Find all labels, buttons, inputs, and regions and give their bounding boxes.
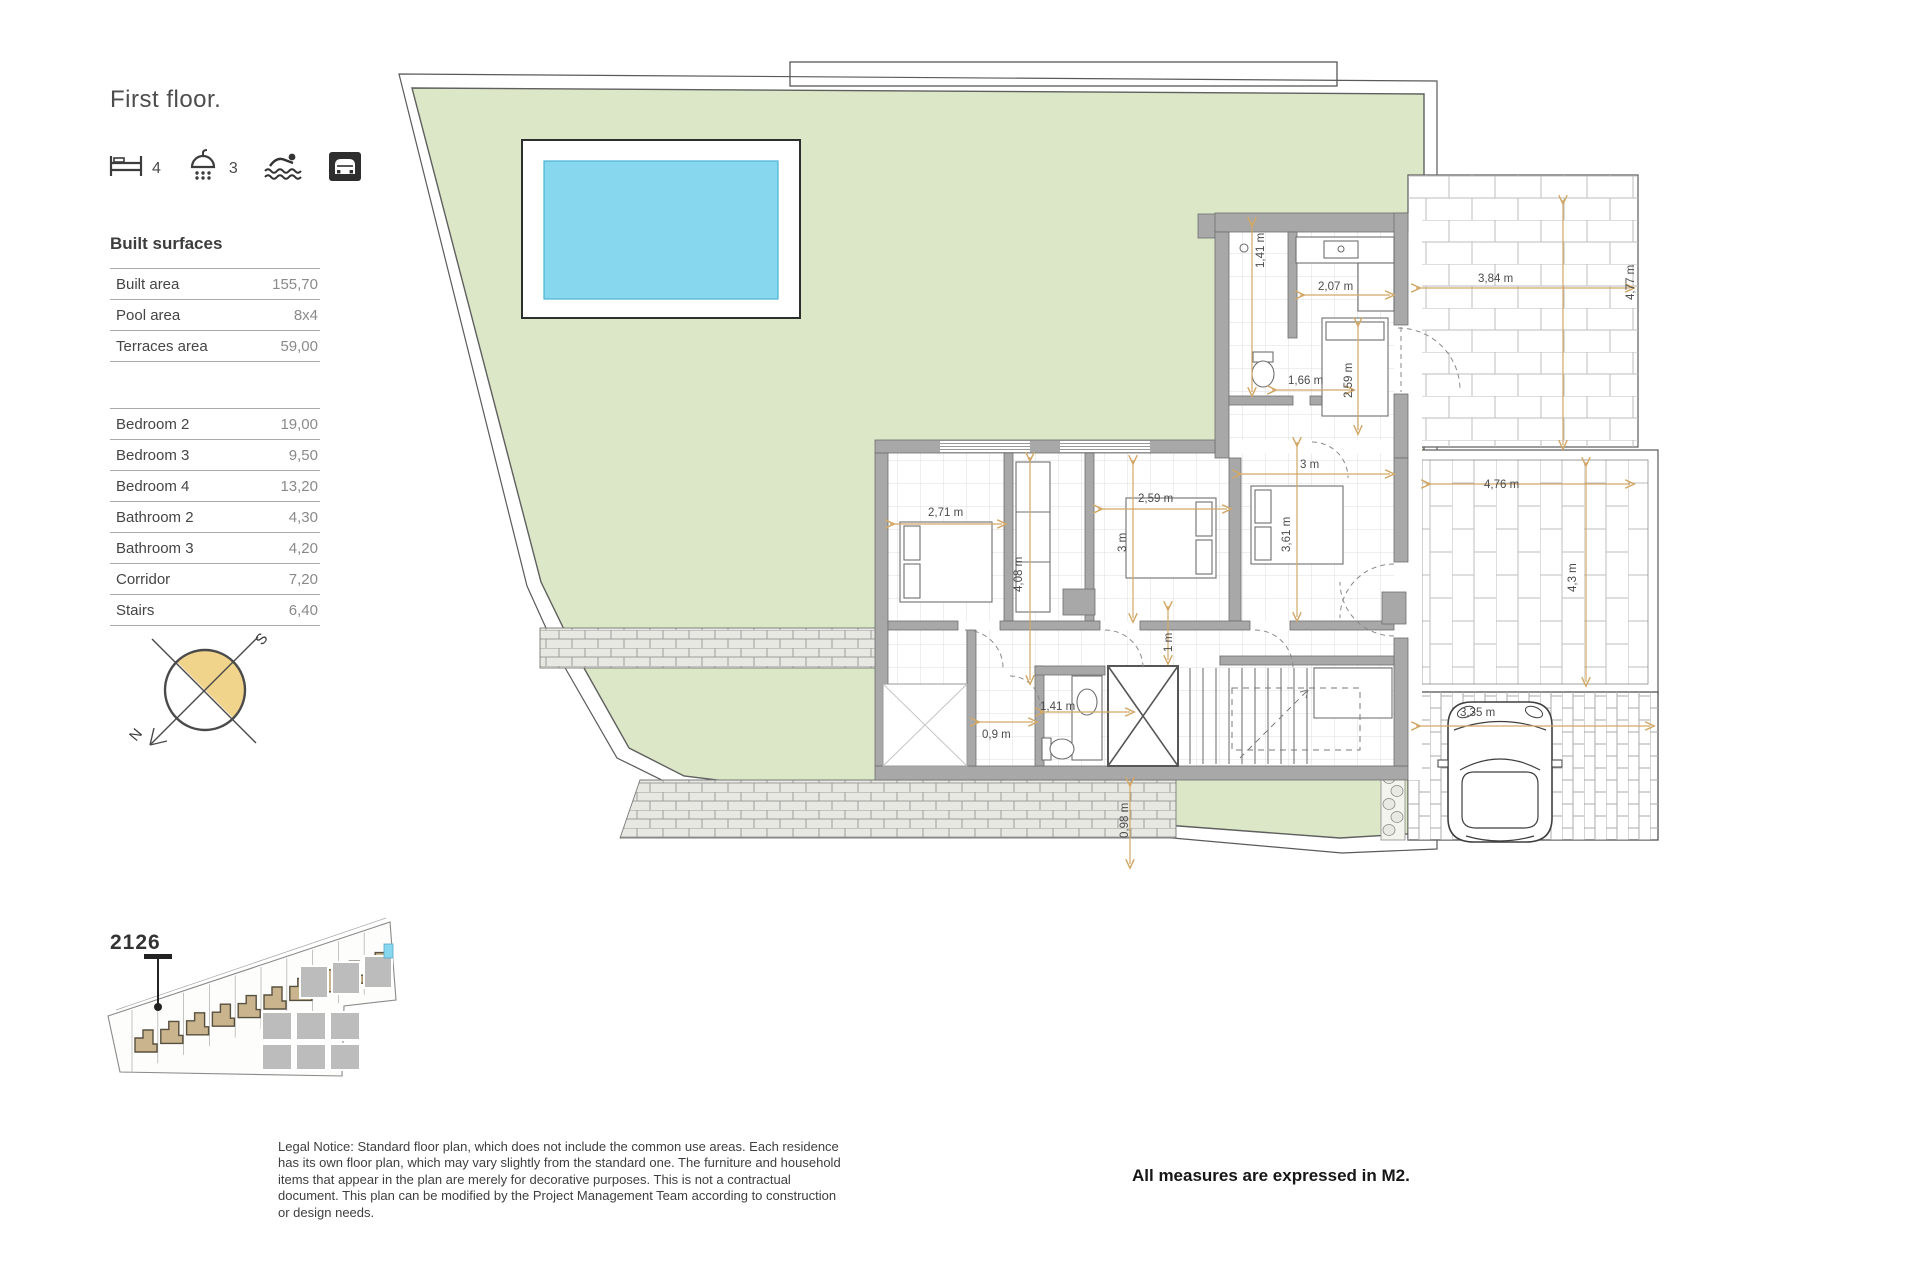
car-icon (1438, 702, 1562, 842)
brochure-page: First floor. 4 3 (0, 0, 1920, 1280)
dimension-label: 2,59 m (1343, 363, 1355, 398)
compass-icon: N S (126, 630, 271, 745)
dimension-label: 3,84 m (1478, 273, 1513, 285)
dimension-label: 2,59 m (1138, 493, 1173, 505)
unit-number-label: 2126 (110, 931, 161, 954)
pool-water (544, 161, 778, 299)
dimension-label: 2,71 m (928, 507, 963, 519)
dimension-label: 1,41 m (1255, 233, 1267, 268)
dimension-label: 4,3 m (1567, 563, 1579, 592)
driveway (1381, 692, 1658, 842)
site-mini-pool (384, 944, 393, 958)
dimension-label: 1,66 m (1288, 375, 1323, 387)
dimension-label: 3 m (1117, 533, 1129, 552)
dimension-label: 3,35 m (1460, 707, 1495, 719)
dimension-label: 3 m (1300, 459, 1319, 471)
dimension-label: 4,76 m (1484, 479, 1519, 491)
measures-note: All measures are expressed in M2. (1132, 1166, 1410, 1186)
legal-notice: Legal Notice: Standard floor plan, which… (278, 1139, 844, 1221)
dimension-label: 1 m (1163, 633, 1175, 652)
site-plan: 2126 (108, 918, 396, 1076)
terrace-east (1412, 450, 1658, 694)
dimension-label: 0,9 m (982, 729, 1011, 741)
dimension-label: 1,41 m (1040, 701, 1075, 713)
pool (522, 140, 800, 318)
terrace-north (1408, 175, 1638, 447)
skylight-box (1108, 666, 1178, 766)
floor-plan: 1,41 m2,07 m3,84 m4,77 m1,66 m2,59 m3 m2… (0, 0, 1920, 1280)
compass-north-label: N (126, 725, 146, 744)
dimension-label: 4,08 m (1013, 557, 1025, 592)
dimension-label: 3,61 m (1281, 517, 1293, 552)
neighbour-structure (790, 62, 1337, 86)
compass-south-label: S (252, 630, 271, 649)
dimension-label: 0,98 m (1119, 803, 1131, 838)
dimension-label: 2,07 m (1318, 281, 1353, 293)
patio-box (883, 684, 967, 766)
dimension-label: 4,77 m (1625, 265, 1637, 300)
